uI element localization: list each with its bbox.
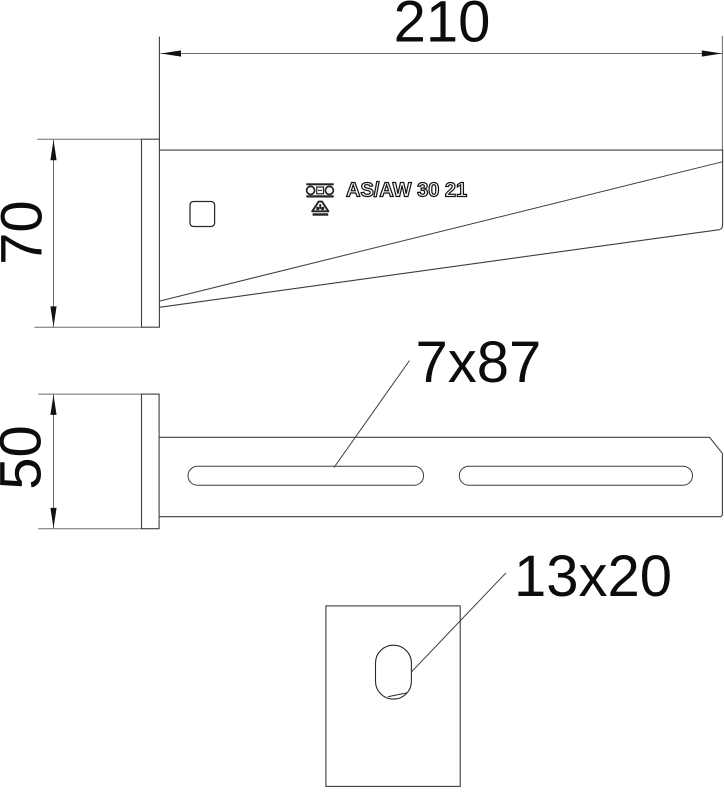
svg-text:13x20: 13x20	[514, 544, 672, 609]
svg-text:70: 70	[0, 200, 55, 265]
svg-text:AS/AW 30 21: AS/AW 30 21	[346, 180, 467, 202]
svg-text:210: 210	[394, 0, 491, 55]
svg-text:50: 50	[0, 425, 54, 490]
svg-text:7x87: 7x87	[416, 330, 542, 395]
